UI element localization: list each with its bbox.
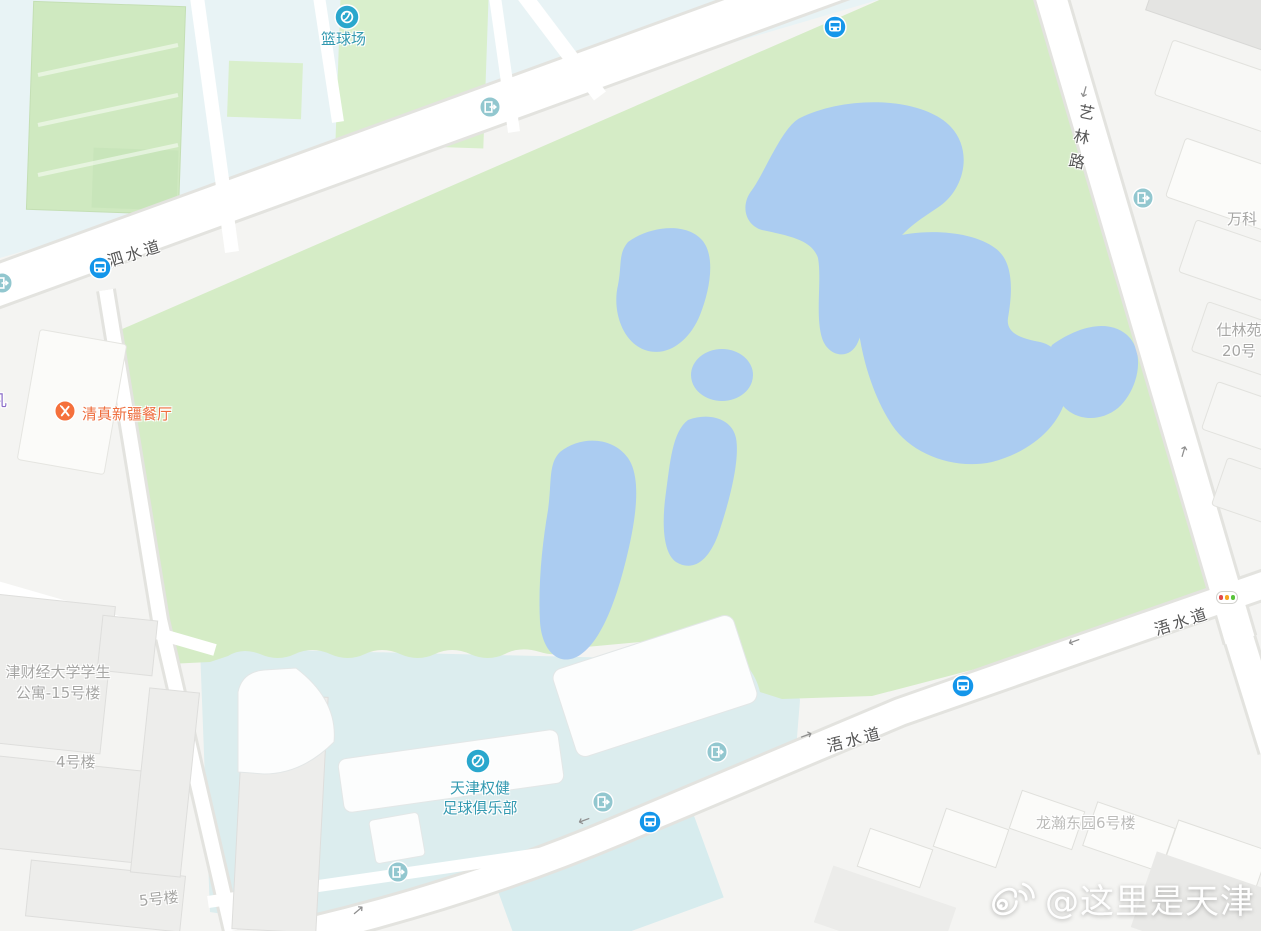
entrance-exit-icon[interactable]: [706, 741, 728, 763]
bus-stop-icon[interactable]: [951, 674, 975, 698]
building-label-4: 4号楼: [56, 752, 96, 773]
poi-label-football-club-line1: 天津权健: [416, 778, 544, 798]
bus-stop-icon[interactable]: [823, 15, 847, 39]
building-label-tjufe-dorm: 津财经大学学生 公寓-15号楼: [0, 662, 122, 704]
sports-poi-icon[interactable]: [465, 748, 491, 774]
poi-label-halal-restaurant[interactable]: 清真新疆餐厅: [82, 403, 172, 424]
building-label-shilinyuan-line2: 20号: [1209, 341, 1261, 362]
poi-label-football-club-line2: 足球俱乐部: [416, 798, 544, 818]
bus-stop-icon[interactable]: [638, 810, 662, 834]
poi-label-basketball-court[interactable]: 篮球场: [321, 29, 366, 49]
map-canvas[interactable]: 泗水道 艺林路 浯水道 浯水道 ↓ ↑ ← → ← → 篮球场 清真新疆餐厅 天…: [0, 0, 1261, 931]
entrance-exit-icon[interactable]: [387, 861, 409, 883]
building-label-longhan: 龙瀚东园6号楼: [1036, 812, 1136, 833]
building-label-vanke: 万科: [1227, 209, 1257, 230]
watermark-text: @这里是天津: [1045, 874, 1255, 923]
poi-label-football-club[interactable]: 天津权健 足球俱乐部: [416, 778, 544, 818]
entrance-exit-icon[interactable]: [479, 96, 501, 118]
watermark: @这里是天津: [990, 874, 1255, 923]
restaurant-poi-icon[interactable]: [54, 400, 76, 422]
building-label-shilinyuan: 仕林苑 20号: [1209, 320, 1261, 362]
building-label-shilinyuan-line1: 仕林苑: [1209, 320, 1261, 341]
traffic-light-icon: [1216, 591, 1238, 604]
entrance-exit-icon[interactable]: [592, 791, 614, 813]
building-label-tjufe-dorm-line1: 津财经大学学生: [0, 662, 122, 683]
entrance-exit-icon[interactable]: [1132, 187, 1154, 209]
sports-poi-icon[interactable]: [334, 4, 360, 30]
building-label-tjufe-dorm-line2: 公寓-15号楼: [0, 683, 122, 704]
bus-stop-icon[interactable]: [88, 256, 112, 280]
building-label-5: 5号楼: [138, 887, 180, 912]
building-label-edge-partial: 凡: [0, 387, 7, 411]
weibo-logo-icon: [990, 879, 1036, 919]
entrance-exit-icon[interactable]: [0, 272, 13, 294]
